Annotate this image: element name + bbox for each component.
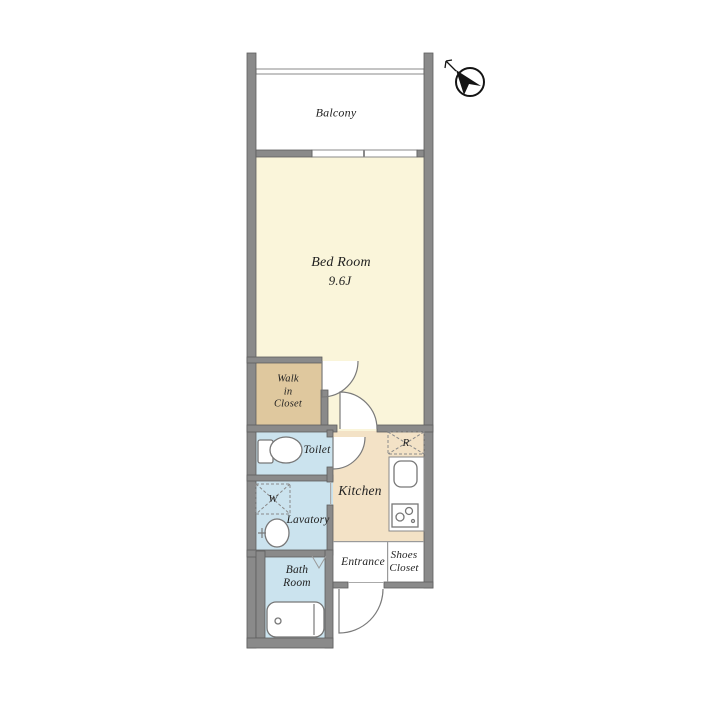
bath-room-label: Bath Room	[283, 564, 311, 590]
floor-plan-drawing	[0, 0, 725, 703]
bedroom-label: Bed Room	[311, 255, 371, 271]
entrance-door-threshold	[348, 582, 384, 583]
kitchen-entrance-step-line	[333, 541, 424, 542]
walk-in-closet-label-line3: Closet	[274, 398, 302, 411]
entrance-label: Entrance	[341, 556, 385, 568]
wall-right-outer	[424, 53, 433, 588]
wall-wet-right-a	[327, 430, 333, 437]
wall-entrance-right	[384, 582, 433, 588]
wall-bath-right	[325, 550, 333, 648]
wall-mid-left	[247, 425, 337, 432]
toilet-label: Toilet	[304, 444, 331, 456]
bathtub-drain	[275, 618, 281, 624]
bedroom-size-label: 9.6J	[329, 273, 352, 289]
shoes-closet-label-line2: Closet	[389, 562, 418, 575]
entrance-shoes-divider	[387, 542, 388, 582]
wall-wet-right-c	[327, 505, 333, 555]
wall-entrance-left	[333, 582, 348, 588]
entrance-door-swing	[339, 589, 383, 633]
wall-bath-left	[256, 551, 265, 638]
shoes-closet-label-line1: Shoes	[389, 549, 418, 562]
balcony-railing	[256, 69, 424, 74]
floor-plan-canvas: Balcony Bed Room 9.6J Walk in Closet Toi…	[0, 0, 725, 703]
kitchen-sink	[394, 461, 417, 487]
north-arrow-icon	[445, 60, 484, 96]
wall-wet-right-b	[327, 467, 333, 482]
wall-closet-top	[247, 357, 322, 363]
bedroom-window-mullion	[363, 150, 365, 157]
refrigerator-label: R	[403, 437, 410, 449]
balcony-label: Balcony	[316, 106, 357, 121]
walk-in-closet-label: Walk in Closet	[274, 373, 302, 411]
kitchen-label: Kitchen	[338, 483, 381, 499]
lavatory-sink	[265, 519, 289, 547]
lavatory-label: Lavatory	[286, 514, 329, 526]
wall-mid-right	[377, 425, 433, 432]
wall-balcony-left	[256, 150, 312, 157]
stove-burner-right	[406, 508, 413, 515]
wall-toilet-bottom	[247, 475, 333, 481]
shoes-closet-label: Shoes Closet	[389, 549, 418, 575]
wall-bottom-outer	[247, 638, 333, 648]
bath-room-label-line1: Bath	[283, 564, 311, 577]
compass-tail	[445, 60, 456, 71]
lavatory-door-line	[330, 482, 331, 505]
walk-in-closet-label-line2: in	[274, 386, 302, 399]
wall-balcony-right	[417, 150, 424, 157]
toilet-bowl	[270, 437, 302, 463]
wall-left-outer	[247, 53, 256, 648]
stove-knob	[412, 520, 415, 523]
washing-machine-label: W	[268, 493, 277, 505]
walk-in-closet-label-line1: Walk	[274, 373, 302, 386]
stove-burner-left	[396, 513, 404, 521]
bath-room-label-line2: Room	[283, 577, 311, 590]
